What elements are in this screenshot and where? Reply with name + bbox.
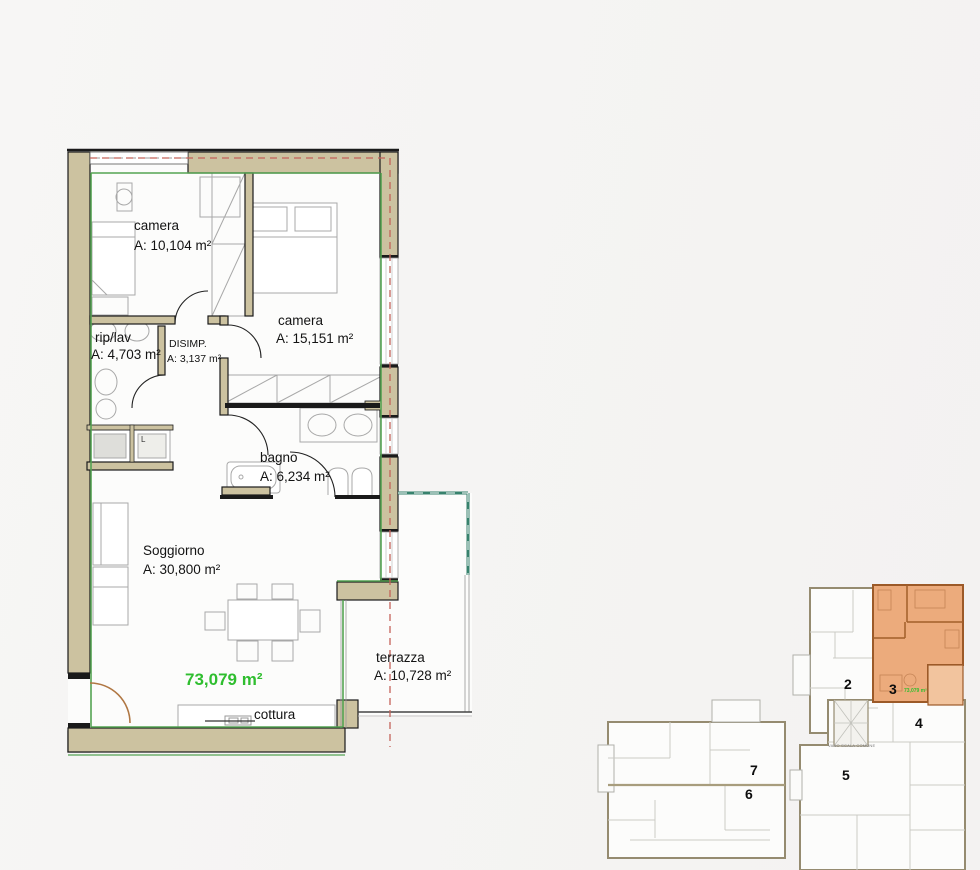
room-label-camera2-area: A: 15,151 m² bbox=[276, 331, 353, 346]
room-label-bagno-name: bagno bbox=[260, 450, 298, 465]
room-label-disimp-name: DISIMP. bbox=[169, 338, 207, 350]
room-label-bagno-area: A: 6,234 m² bbox=[260, 469, 330, 484]
appliance-label: L bbox=[141, 436, 145, 444]
room-label-camera1-area: A: 10,104 m² bbox=[134, 238, 211, 253]
total-area-label: 73,079 m² bbox=[185, 670, 263, 690]
room-label-riplav-name: rip/lav bbox=[95, 330, 131, 345]
room-label-disimp-area: A: 3,137 m² bbox=[167, 353, 221, 365]
minimap-stair-core bbox=[834, 700, 868, 746]
room-label-soggiorno-name: Soggiorno bbox=[143, 543, 205, 558]
minimap-unit-7: 7 bbox=[750, 762, 758, 778]
room-label-riplav-area: A: 4,703 m² bbox=[91, 347, 161, 362]
room-label-camera1-name: camera bbox=[134, 218, 179, 233]
room-label-soggiorno-area: A: 30,800 m² bbox=[143, 562, 220, 577]
minimap-stairwell-label: VANO SCALA COMUNE bbox=[828, 743, 875, 748]
minimap-unit-5: 5 bbox=[842, 767, 850, 783]
minimap-unit3-area: 73,079 m² bbox=[904, 688, 927, 694]
minimap-unit-4: 4 bbox=[915, 715, 923, 731]
floor-plan-page: camera A: 10,104 m² camera A: 15,151 m² … bbox=[0, 0, 980, 870]
room-label-terrazza-area: A: 10,728 m² bbox=[374, 668, 451, 683]
minimap-unit-3: 3 bbox=[889, 681, 897, 697]
minimap-unit3-highlight bbox=[873, 585, 963, 705]
minimap-unit-6: 6 bbox=[745, 786, 753, 802]
minimap-unit-2: 2 bbox=[844, 676, 852, 692]
room-label-cottura-name: cottura bbox=[254, 707, 295, 722]
room-label-terrazza-name: terrazza bbox=[376, 650, 425, 665]
room-label-camera2-name: camera bbox=[278, 313, 323, 328]
